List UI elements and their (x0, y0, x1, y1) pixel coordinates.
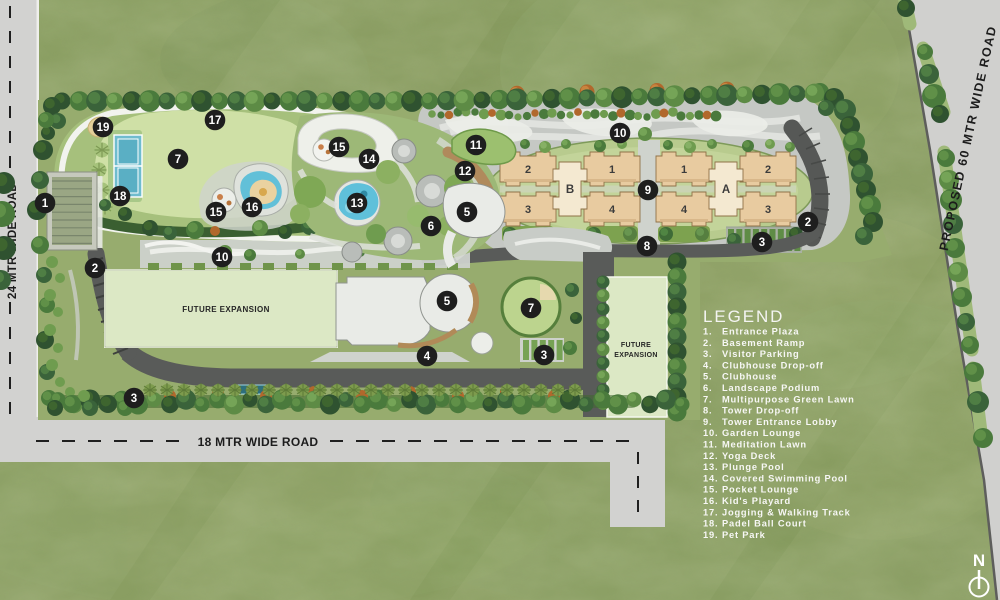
svg-text:9.: 9. (703, 417, 712, 427)
svg-text:15: 15 (210, 207, 223, 219)
svg-text:6: 6 (428, 221, 434, 233)
svg-text:4: 4 (609, 204, 616, 216)
svg-text:Jogging & Walking Track: Jogging & Walking Track (722, 507, 851, 517)
svg-text:16.: 16. (703, 496, 718, 506)
svg-text:3: 3 (541, 350, 547, 362)
svg-text:B: B (566, 184, 574, 196)
svg-text:Pet Park: Pet Park (722, 530, 766, 540)
svg-text:10: 10 (614, 128, 627, 140)
svg-text:EXPANSION: EXPANSION (614, 352, 657, 359)
svg-text:1: 1 (42, 198, 49, 210)
svg-text:Pocket Lounge: Pocket Lounge (722, 485, 799, 495)
svg-text:10.: 10. (703, 428, 718, 438)
svg-text:Meditation Lawn: Meditation Lawn (722, 440, 807, 450)
svg-text:3: 3 (525, 204, 531, 216)
svg-text:10: 10 (216, 252, 229, 264)
svg-text:16: 16 (246, 202, 259, 214)
svg-text:3.: 3. (703, 349, 712, 359)
svg-text:N: N (973, 551, 985, 570)
svg-text:17: 17 (209, 115, 222, 127)
svg-text:FUTURE: FUTURE (621, 342, 651, 349)
svg-text:2: 2 (805, 217, 811, 229)
svg-text:Garden Lounge: Garden Lounge (722, 428, 801, 438)
svg-text:14.: 14. (703, 473, 718, 483)
svg-text:8.: 8. (703, 406, 712, 416)
svg-text:Clubhouse Drop-off: Clubhouse Drop-off (722, 360, 824, 370)
svg-text:11: 11 (470, 140, 483, 152)
svg-text:Basement Ramp: Basement Ramp (722, 338, 805, 348)
svg-text:Clubhouse: Clubhouse (722, 372, 777, 382)
svg-text:12: 12 (459, 166, 472, 178)
svg-text:11.: 11. (703, 440, 718, 450)
svg-text:13: 13 (351, 198, 364, 210)
svg-text:LEGEND: LEGEND (703, 307, 784, 326)
svg-text:17.: 17. (703, 507, 718, 517)
svg-text:5: 5 (464, 207, 471, 219)
svg-text:Multipurpose Green Lawn: Multipurpose Green Lawn (722, 394, 855, 404)
svg-text:15.: 15. (703, 485, 718, 495)
svg-text:1.: 1. (703, 327, 712, 337)
svg-text:4.: 4. (703, 360, 712, 370)
svg-text:Plunge Pool: Plunge Pool (722, 462, 785, 472)
svg-text:9: 9 (645, 185, 651, 197)
svg-text:Kid's Playard: Kid's Playard (722, 496, 791, 506)
svg-text:1: 1 (681, 164, 687, 176)
svg-text:18.: 18. (703, 519, 718, 529)
svg-text:4: 4 (424, 351, 431, 363)
svg-text:Tower Entrance Lobby: Tower Entrance Lobby (722, 417, 838, 427)
svg-text:14: 14 (363, 154, 376, 166)
svg-text:13.: 13. (703, 462, 718, 472)
svg-text:2: 2 (525, 164, 531, 176)
svg-text:5: 5 (444, 296, 451, 308)
svg-text:4: 4 (681, 204, 688, 216)
svg-text:8: 8 (644, 241, 651, 253)
svg-text:5.: 5. (703, 372, 712, 382)
svg-text:Covered Swimming Pool: Covered Swimming Pool (722, 473, 848, 483)
svg-text:3: 3 (131, 393, 137, 405)
svg-text:2: 2 (765, 164, 771, 176)
svg-text:18 MTR WIDE ROAD: 18 MTR WIDE ROAD (198, 435, 319, 449)
svg-text:A: A (722, 184, 730, 196)
svg-text:FUTURE EXPANSION: FUTURE EXPANSION (182, 305, 270, 314)
svg-text:19: 19 (97, 122, 110, 134)
svg-text:19.: 19. (703, 530, 718, 540)
svg-text:7: 7 (528, 303, 534, 315)
svg-text:3: 3 (765, 204, 771, 216)
svg-text:Yoga Deck: Yoga Deck (722, 451, 776, 461)
svg-text:Entrance Plaza: Entrance Plaza (722, 327, 799, 337)
svg-text:6.: 6. (703, 383, 712, 393)
svg-text:2: 2 (92, 263, 98, 275)
svg-text:Landscape Podium: Landscape Podium (722, 383, 820, 393)
svg-text:3: 3 (759, 237, 765, 249)
svg-text:1: 1 (609, 164, 615, 176)
svg-text:Tower Drop-off: Tower Drop-off (722, 406, 799, 416)
svg-text:7.: 7. (703, 394, 712, 404)
svg-text:Padel Ball Court: Padel Ball Court (722, 519, 807, 529)
svg-text:12.: 12. (703, 451, 718, 461)
svg-text:7: 7 (175, 154, 181, 166)
svg-text:Visitor Parking: Visitor Parking (722, 349, 799, 359)
svg-text:2.: 2. (703, 338, 712, 348)
svg-text:15: 15 (333, 142, 346, 154)
svg-text:18: 18 (114, 191, 127, 203)
